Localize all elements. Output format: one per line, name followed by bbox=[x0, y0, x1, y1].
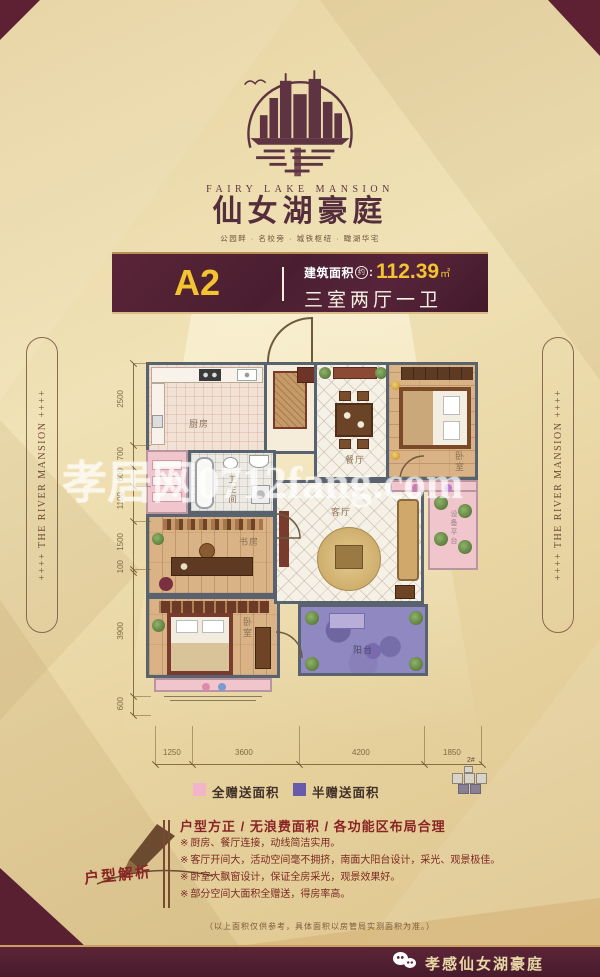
dim-line bbox=[133, 363, 134, 715]
analysis-bullet: ※厨房、餐厅连接，动线简洁实用。 bbox=[180, 834, 340, 849]
side-banner-text: ++++ THE RIVER MANSION ++++ bbox=[553, 389, 564, 581]
analysis-bullet: ※部分空间大面积全赠送，得房率高。 bbox=[180, 885, 350, 900]
bullet-text: 厨房、餐厅连接，动线简洁实用。 bbox=[190, 838, 340, 849]
dim-ext bbox=[424, 726, 425, 764]
floorplan: 厨房 餐厅 卧室 bbox=[140, 338, 480, 720]
dim-ext bbox=[133, 521, 151, 522]
keyplan-label: 2# bbox=[467, 757, 475, 764]
legend-swatch-half-gift bbox=[293, 783, 306, 796]
dim-ext bbox=[155, 726, 156, 764]
dim-label: 1250 bbox=[163, 748, 181, 757]
analysis-bullet: ※卧室大飘窗设计，保证全房采光，观景效果好。 bbox=[180, 868, 400, 883]
area-unit: ㎡ bbox=[440, 265, 450, 280]
dim-label: 100 bbox=[116, 560, 125, 573]
logo-tagline: 公园畔 · 名校旁 · 城铁枢纽 · 瞰湖华宅 bbox=[150, 233, 450, 244]
dim-ext bbox=[481, 726, 482, 764]
divider-bar bbox=[168, 820, 170, 908]
bullet-marker: ※ bbox=[180, 838, 188, 849]
logo-cn-name: 仙女湖豪庭 bbox=[150, 195, 450, 229]
area-label: 建筑面积 bbox=[304, 264, 354, 281]
door-arcs bbox=[138, 302, 482, 722]
bullet-text: 部分空间大面积全赠送，得房率高。 bbox=[190, 889, 350, 900]
keyplan-unit bbox=[476, 773, 487, 784]
keyplan-unit bbox=[452, 773, 463, 784]
dim-line bbox=[155, 764, 482, 765]
legend-swatch-full-gift bbox=[193, 783, 206, 796]
corner-triangle bbox=[0, 0, 40, 40]
skyline-logo-icon bbox=[195, 56, 405, 182]
divider bbox=[282, 267, 284, 301]
unit-code: A2 bbox=[174, 262, 220, 304]
dim-ext bbox=[299, 726, 300, 764]
dim-ext bbox=[133, 363, 151, 364]
analysis-title: 户型方正 / 无浪费面积 / 各功能区布局合理 bbox=[180, 816, 446, 835]
bullet-text: 客厅开间大，活动空间毫不拥挤，南面大阳台设计，采光、观景极佳。 bbox=[190, 855, 500, 866]
side-banner-right: ++++ THE RIVER MANSION ++++ bbox=[542, 337, 574, 633]
colon: : bbox=[369, 265, 373, 279]
disclaimer-text: （以上面积仅供参考，具体面积以房管局实测面积为准。） bbox=[90, 921, 550, 932]
bullet-marker: ※ bbox=[180, 855, 188, 866]
wechat-bubble-small bbox=[404, 958, 416, 968]
bullet-marker: ※ bbox=[180, 872, 188, 883]
keyplan-unit bbox=[464, 773, 475, 784]
keyplan-unit-highlight bbox=[470, 784, 481, 794]
legend-label-full-gift: 全赠送面积 bbox=[212, 782, 280, 801]
dim-label: 1500 bbox=[116, 533, 125, 551]
approx-circle: 约 bbox=[355, 266, 368, 279]
dim-label: 3900 bbox=[116, 622, 125, 640]
corner-triangle bbox=[548, 0, 600, 56]
keyplan-unit-highlight bbox=[458, 784, 469, 794]
footer-brand: 孝感仙女湖豪庭 bbox=[425, 953, 544, 974]
dim-ext bbox=[133, 569, 151, 570]
dim-label: 600 bbox=[116, 697, 125, 710]
keyplan-unit bbox=[464, 766, 473, 773]
dim-label: 4200 bbox=[352, 748, 370, 757]
footer-bar: 孝感仙女湖豪庭 bbox=[0, 945, 600, 977]
poster: FAIRY LAKE MANSION 仙女湖豪庭 公园畔 · 名校旁 · 城铁枢… bbox=[0, 0, 600, 977]
watermark: 孝居网0712fang.com bbox=[62, 446, 538, 511]
analysis-bullet: ※客厅开间大，活动空间毫不拥挤，南面大阳台设计，采光、观景极佳。 bbox=[180, 851, 500, 866]
legend-label-half-gift: 半赠送面积 bbox=[312, 782, 380, 801]
dim-ext bbox=[192, 726, 193, 764]
side-banner-text: ++++ THE RIVER MANSION ++++ bbox=[37, 389, 48, 581]
corner-triangle bbox=[0, 868, 86, 947]
divider-bar bbox=[163, 820, 165, 908]
area-value: 112.39 bbox=[376, 260, 439, 284]
dim-label: 1850 bbox=[443, 748, 461, 757]
logo-en-name: FAIRY LAKE MANSION bbox=[150, 184, 450, 195]
dim-ext bbox=[133, 715, 151, 716]
logo: FAIRY LAKE MANSION 仙女湖豪庭 公园畔 · 名校旁 · 城铁枢… bbox=[150, 56, 450, 244]
bullet-marker: ※ bbox=[180, 889, 188, 900]
side-banner-left: ++++ THE RIVER MANSION ++++ bbox=[26, 337, 58, 633]
bullet-text: 卧室大飘窗设计，保证全房采光，观景效果好。 bbox=[190, 872, 400, 883]
wechat-icon bbox=[393, 952, 417, 970]
dim-label: 3600 bbox=[235, 748, 253, 757]
dim-label: 2500 bbox=[116, 390, 125, 408]
dim-ext bbox=[133, 696, 151, 697]
